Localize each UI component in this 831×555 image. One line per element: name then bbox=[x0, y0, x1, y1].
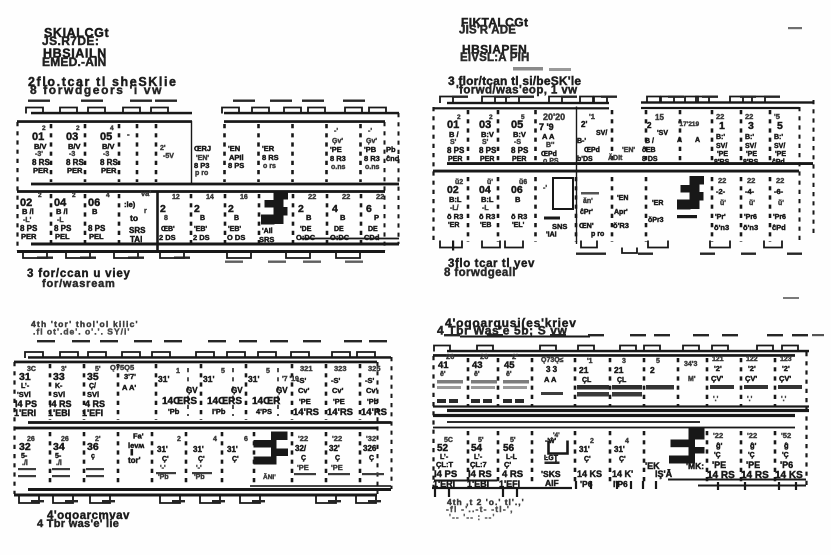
svg-text:12: 12 bbox=[172, 194, 180, 201]
svg-text:ō'n3: ō'n3 bbox=[714, 223, 729, 232]
svg-text:7 '9: 7 '9 bbox=[539, 122, 554, 132]
svg-text:B: B bbox=[234, 215, 239, 222]
svg-text:16: 16 bbox=[240, 194, 248, 201]
svg-text:34'3: 34'3 bbox=[684, 361, 697, 368]
svg-text:S': S' bbox=[482, 139, 489, 146]
svg-text:p ro: p ro bbox=[591, 231, 604, 238]
svg-text:Fa': Fa' bbox=[133, 432, 144, 441]
svg-text:5: 5 bbox=[777, 120, 783, 132]
svg-text:8: 8 bbox=[164, 215, 168, 222]
svg-text:Ç: Ç bbox=[369, 455, 374, 462]
svg-text:31': 31' bbox=[227, 445, 238, 454]
svg-text:ÇL:7: ÇL:7 bbox=[470, 460, 487, 469]
svg-text:21: 21 bbox=[614, 365, 624, 375]
svg-text:B/V: B/V bbox=[68, 142, 81, 151]
svg-text:2: 2 bbox=[298, 203, 304, 215]
svg-text:'EN: 'EN bbox=[617, 195, 628, 202]
svg-text:ÇL: ÇL bbox=[582, 377, 592, 384]
svg-text:Ç': Ç' bbox=[504, 460, 511, 469]
svg-text:PER: PER bbox=[448, 156, 462, 163]
svg-text:14 KS: 14 KS bbox=[775, 470, 803, 481]
svg-text:'-': '-' bbox=[160, 465, 166, 472]
svg-text:M': M' bbox=[688, 376, 696, 383]
svg-text:A A: A A bbox=[542, 132, 555, 141]
svg-text:2: 2 bbox=[650, 365, 655, 375]
svg-text:323: 323 bbox=[334, 364, 347, 373]
svg-text:SRS: SRS bbox=[259, 235, 274, 244]
svg-text:'Pb: 'Pb bbox=[367, 397, 379, 406]
svg-text:-S': -S' bbox=[297, 376, 307, 385]
svg-text:31': 31' bbox=[203, 374, 214, 384]
svg-text:2': 2' bbox=[581, 120, 587, 129]
svg-text:'forwd/was'eop, 1 vw: 'forwd/was'eop, 1 vw bbox=[456, 85, 577, 97]
svg-text:ÇL:T: ÇL:T bbox=[436, 460, 453, 469]
svg-text:Ǫ73Ǫ≤: Ǫ73Ǫ≤ bbox=[541, 357, 564, 364]
svg-text:8'RS: 8'RS bbox=[743, 159, 759, 166]
svg-text:-S': -S' bbox=[331, 376, 341, 385]
svg-text:PER: PER bbox=[480, 156, 494, 163]
svg-text:P: P bbox=[374, 213, 379, 222]
svg-text:'PE: 'PE bbox=[330, 145, 342, 154]
svg-text:B: B bbox=[92, 207, 98, 216]
svg-text:'2': '2' bbox=[782, 364, 790, 373]
svg-text:35: 35 bbox=[87, 371, 99, 383]
svg-text:'32: '32 bbox=[366, 434, 376, 443]
svg-text:5: 5 bbox=[656, 358, 660, 365]
svg-text:PEL: PEL bbox=[55, 232, 70, 241]
svg-text:'22: '22 bbox=[747, 431, 757, 440]
svg-text:-2-: -2- bbox=[716, 187, 726, 196]
svg-text:31': 31' bbox=[579, 445, 590, 454]
svg-text:'P6: 'P6 bbox=[580, 479, 593, 489]
svg-text:3: 3 bbox=[622, 358, 626, 365]
svg-text:B/V: B/V bbox=[34, 142, 47, 151]
svg-text:'PE: 'PE bbox=[331, 463, 343, 472]
svg-text:14ŒR: 14ŒR bbox=[252, 396, 281, 407]
svg-text:Ç/: Ç/ bbox=[89, 383, 96, 390]
svg-text:1'ERl: 1'ERl bbox=[14, 408, 36, 418]
svg-text:321: 321 bbox=[300, 364, 313, 373]
svg-text:21: 21 bbox=[579, 365, 589, 375]
svg-text:./l: ./l bbox=[22, 460, 28, 467]
svg-text:'-': '-' bbox=[196, 465, 202, 472]
svg-text:B:L: B:L bbox=[481, 195, 494, 204]
svg-text:'22: '22 bbox=[298, 434, 308, 443]
svg-text:B /: B / bbox=[645, 138, 654, 145]
svg-text:'ER: 'ER bbox=[448, 222, 459, 229]
svg-text:B:': B:' bbox=[716, 134, 725, 141]
svg-text:Ǫ75Ǫ5: Ǫ75Ǫ5 bbox=[110, 363, 134, 372]
svg-text:3 3: 3 3 bbox=[546, 365, 558, 374]
svg-text:'AIl: 'AIl bbox=[262, 228, 273, 235]
svg-text:SVl: SVl bbox=[87, 390, 99, 399]
svg-text:31': 31' bbox=[248, 374, 259, 384]
svg-text:p ro: p ro bbox=[195, 170, 208, 177]
svg-text:8 PS: 8 PS bbox=[447, 146, 465, 155]
svg-text:ĉnd: ĉnd bbox=[386, 154, 400, 163]
svg-text:EIVSL:A PIH: EIVSL:A PIH bbox=[460, 52, 530, 64]
svg-text:Cv': Cv' bbox=[298, 386, 310, 395]
svg-text:'IAI: 'IAI bbox=[546, 232, 557, 239]
svg-text:22: 22 bbox=[342, 192, 350, 201]
svg-text:SVl: SVl bbox=[53, 390, 65, 399]
svg-text:B: B bbox=[200, 215, 205, 222]
svg-text:-L: -L bbox=[57, 217, 64, 224]
svg-text:SNS: SNS bbox=[552, 222, 567, 231]
svg-text:SV/: SV/ bbox=[716, 143, 727, 150]
svg-text:34: 34 bbox=[53, 441, 65, 453]
svg-text:8 R3: 8 R3 bbox=[364, 154, 380, 163]
svg-text:B /l: B /l bbox=[22, 207, 34, 216]
svg-text:S': S' bbox=[450, 139, 457, 146]
svg-text:'PE: 'PE bbox=[746, 151, 757, 158]
svg-text:'EB': 'EB' bbox=[194, 226, 207, 233]
svg-text:'Pr6: 'Pr6 bbox=[773, 214, 786, 221]
svg-text:Ç': Ç' bbox=[162, 456, 169, 463]
svg-text:for/wasream: for/wasream bbox=[42, 278, 116, 290]
svg-text:'P6: 'P6 bbox=[780, 460, 793, 470]
svg-text:PER: PER bbox=[512, 156, 526, 163]
svg-text:DE: DE bbox=[334, 226, 344, 233]
svg-text:121: 121 bbox=[712, 356, 724, 363]
svg-text:B:': B:' bbox=[745, 134, 754, 141]
svg-text:'Pb: 'Pb bbox=[194, 474, 205, 481]
svg-text:'Pb: 'Pb bbox=[158, 474, 169, 481]
svg-text:2': 2' bbox=[160, 145, 166, 152]
svg-text:ĢV: ĢV bbox=[231, 386, 243, 395]
svg-text:Apr': Apr' bbox=[614, 209, 628, 216]
svg-text:PEL: PEL bbox=[89, 232, 104, 241]
svg-text:'-- '-- : --': '-- '-- : --' bbox=[449, 513, 496, 522]
svg-text:31': 31' bbox=[193, 445, 204, 454]
svg-text:'EL': 'EL' bbox=[512, 222, 525, 229]
svg-text:PER: PER bbox=[21, 232, 37, 241]
svg-text:B:V: B:V bbox=[513, 130, 526, 139]
svg-text:'PB: 'PB bbox=[364, 145, 377, 154]
svg-text:1'EBl: 1'EBl bbox=[48, 408, 70, 418]
svg-text:'17'219: '17'219 bbox=[678, 121, 700, 128]
svg-text:-': -' bbox=[543, 185, 547, 192]
svg-text:-5V: -5V bbox=[163, 153, 174, 160]
svg-text:PER: PER bbox=[101, 166, 117, 175]
svg-text:ŭ': ŭ' bbox=[720, 200, 726, 207]
svg-text:2: 2 bbox=[228, 203, 234, 215]
svg-text:'PE: 'PE bbox=[299, 397, 311, 406]
svg-text:326: 326 bbox=[363, 444, 377, 453]
svg-text:-': -' bbox=[334, 128, 338, 135]
svg-text:45: 45 bbox=[504, 360, 515, 371]
svg-text:-6-: -6- bbox=[774, 187, 784, 196]
svg-text:ŏ'R3: ŏ'R3 bbox=[613, 221, 629, 230]
svg-text:'EB': 'EB' bbox=[228, 226, 241, 233]
svg-text:22: 22 bbox=[776, 176, 784, 185]
svg-text:31': 31' bbox=[157, 445, 168, 454]
svg-text:54: 54 bbox=[471, 443, 483, 454]
svg-text:2: 2 bbox=[177, 436, 181, 443]
svg-text:ō R3: ō R3 bbox=[511, 212, 527, 221]
svg-text:Pb: Pb bbox=[386, 145, 396, 154]
svg-text:'PE: 'PE bbox=[717, 151, 728, 158]
svg-text:ŒPd: ŒPd bbox=[541, 151, 557, 158]
svg-text:-L': -L' bbox=[23, 217, 32, 224]
svg-text:Ģv': Ģv' bbox=[332, 138, 343, 145]
svg-text:ĉEB: ĉEB bbox=[642, 147, 656, 154]
svg-text:14'RS: 14'RS bbox=[327, 407, 353, 418]
svg-text:4 Tbr was'e' lie: 4 Tbr was'e' lie bbox=[37, 518, 119, 530]
svg-text:PER: PER bbox=[67, 166, 83, 175]
svg-text:Cv': Cv' bbox=[366, 386, 378, 395]
svg-text:2: 2 bbox=[72, 192, 76, 199]
svg-text:B:L: B:L bbox=[449, 195, 462, 204]
svg-text:B:': B:' bbox=[774, 134, 783, 141]
svg-text:41: 41 bbox=[438, 360, 449, 371]
svg-text:22: 22 bbox=[308, 192, 316, 201]
svg-text:'EN: 'EN bbox=[228, 144, 240, 153]
svg-text:va': va' bbox=[141, 189, 151, 198]
svg-text:-S: -S bbox=[514, 139, 521, 146]
svg-text:o.ns: o.ns bbox=[365, 164, 379, 171]
svg-text:2: 2 bbox=[590, 438, 594, 445]
svg-text:'ER: 'ER bbox=[262, 144, 275, 153]
svg-text:B:V: B:V bbox=[481, 130, 494, 139]
svg-text:33: 33 bbox=[53, 371, 65, 383]
svg-text:to: to bbox=[130, 213, 138, 223]
svg-text:14 K': 14 K' bbox=[612, 469, 633, 479]
svg-text:4: 4 bbox=[106, 192, 110, 199]
svg-text:14ŒRS: 14ŒRS bbox=[162, 396, 197, 407]
svg-text:r: r bbox=[144, 208, 147, 215]
svg-text:8 forwdgeall: 8 forwdgeall bbox=[444, 267, 516, 279]
svg-text:'2': '2' bbox=[748, 364, 756, 373]
svg-text:ÇV': ÇV' bbox=[779, 374, 791, 383]
svg-text:3: 3 bbox=[748, 120, 754, 132]
svg-text:B: B bbox=[306, 213, 312, 222]
svg-text:1: 1 bbox=[719, 120, 725, 132]
svg-text:Ç: Ç bbox=[301, 455, 306, 462]
svg-text:'EB: 'EB bbox=[480, 222, 491, 229]
svg-text:32: 32 bbox=[19, 441, 31, 453]
svg-text:8 P3: 8 P3 bbox=[194, 161, 209, 170]
svg-text:325: 325 bbox=[368, 364, 381, 373]
svg-text:4: 4 bbox=[332, 203, 338, 215]
svg-text:b'DS: b'DS bbox=[577, 156, 593, 163]
svg-text:'1: '1 bbox=[589, 112, 595, 121]
svg-text:o rs: o rs bbox=[263, 163, 276, 170]
svg-text:'Ç: 'Ç bbox=[782, 452, 789, 459]
svg-text:ĿĠŢ: ĿĠŢ bbox=[544, 453, 559, 462]
svg-text:'Pb: 'Pb bbox=[168, 407, 180, 416]
svg-text:122: 122 bbox=[746, 356, 758, 363]
svg-text:'PE: 'PE bbox=[775, 151, 786, 158]
svg-text:-L/: -L/ bbox=[450, 205, 459, 212]
svg-text:ĢV: ĢV bbox=[276, 386, 288, 395]
svg-text:2: 2 bbox=[647, 121, 652, 130]
svg-text:'1: '1 bbox=[587, 358, 593, 365]
svg-text:-': -' bbox=[368, 128, 372, 135]
svg-text:K-: K- bbox=[55, 383, 63, 390]
svg-text:'Pr6: 'Pr6 bbox=[744, 214, 757, 221]
svg-text:A: A bbox=[695, 137, 700, 144]
svg-text:B/V: B/V bbox=[102, 142, 115, 151]
svg-text:8 DS: 8 DS bbox=[642, 156, 658, 163]
svg-text:6: 6 bbox=[244, 436, 248, 443]
svg-text::le): :le) bbox=[124, 200, 136, 209]
svg-text:123: 123 bbox=[780, 356, 792, 363]
svg-text:SV/: SV/ bbox=[745, 143, 756, 150]
svg-text:ĂNI': ĂNI' bbox=[263, 472, 276, 481]
svg-text:-: - bbox=[127, 130, 130, 139]
svg-text:8 forwdgeors 'i vw: 8 forwdgeors 'i vw bbox=[30, 83, 163, 97]
svg-text:2: 2 bbox=[160, 203, 166, 215]
svg-text:ĂDIt: ĂDIt bbox=[608, 153, 623, 162]
svg-text:2 DS: 2 DS bbox=[159, 233, 176, 242]
svg-text:B: B bbox=[340, 213, 346, 222]
svg-text:PER: PER bbox=[33, 166, 49, 175]
svg-text:1: 1 bbox=[176, 368, 180, 375]
svg-text:ç: ç bbox=[91, 453, 95, 460]
svg-text:14ŒRS: 14ŒRS bbox=[207, 396, 242, 407]
svg-text:./l: ./l bbox=[56, 460, 62, 467]
svg-text:'22: '22 bbox=[332, 434, 342, 443]
svg-text:'Ç: 'Ç bbox=[748, 452, 755, 459]
svg-text:22: 22 bbox=[747, 176, 755, 185]
svg-text:Ç': Ç' bbox=[198, 456, 205, 463]
svg-text:20'20: 20'20 bbox=[543, 112, 565, 122]
svg-text:'.': '.' bbox=[781, 396, 787, 403]
svg-text:1'EFl: 1'EFl bbox=[82, 408, 103, 418]
svg-text:SRS: SRS bbox=[129, 226, 146, 235]
svg-text:8 R3: 8 R3 bbox=[330, 154, 346, 163]
svg-text:14 RS: 14 RS bbox=[707, 470, 735, 481]
svg-text:ÇV': ÇV' bbox=[711, 374, 723, 383]
svg-text:1'EBl: 1'EBl bbox=[467, 479, 489, 489]
svg-text:8 PS: 8 PS bbox=[479, 146, 497, 155]
svg-text:B-': B-' bbox=[577, 138, 586, 145]
svg-text:'.': '.' bbox=[713, 396, 719, 403]
svg-text:'SVl: 'SVl bbox=[17, 390, 31, 399]
svg-text:B /l: B /l bbox=[56, 207, 68, 216]
svg-text:O:DC: O:DC bbox=[296, 233, 316, 242]
svg-text:-L: -L bbox=[482, 205, 489, 212]
svg-text:1'ERl: 1'ERl bbox=[433, 479, 455, 489]
svg-text:-3: -3 bbox=[103, 151, 109, 158]
svg-text:SV/: SV/ bbox=[774, 143, 785, 150]
svg-text:-'ŵ': -'ŵ' bbox=[545, 438, 556, 445]
svg-text:8'RS: 8'RS bbox=[714, 159, 730, 166]
svg-text:B /: B / bbox=[449, 130, 460, 139]
svg-text:52: 52 bbox=[437, 443, 449, 454]
svg-text:ŭ': ŭ' bbox=[778, 200, 784, 207]
svg-text:8 RS: 8 RS bbox=[262, 153, 279, 162]
svg-text:43: 43 bbox=[472, 360, 483, 371]
svg-text:ŒPd: ŒPd bbox=[584, 147, 600, 154]
svg-text:2: 2 bbox=[38, 192, 42, 199]
svg-text:-3: -3 bbox=[69, 151, 75, 158]
svg-text:1'EFl: 1'EFl bbox=[499, 479, 520, 489]
svg-text:ĉPd: ĉPd bbox=[772, 223, 786, 232]
svg-text:'DE: 'DE bbox=[300, 226, 312, 233]
svg-text:'ER: 'ER bbox=[652, 200, 663, 207]
svg-text:ÇL: ÇL bbox=[617, 377, 627, 384]
svg-text:A A': A A' bbox=[122, 383, 136, 392]
svg-text:.fl ot'.de'. o'.'. SY/i': .fl ot'.de'. o'.'. SY/i' bbox=[33, 327, 130, 337]
svg-text:Ç: Ç bbox=[335, 455, 340, 462]
svg-text:ŒB': ŒB' bbox=[161, 226, 175, 233]
svg-text:ō'n3: ō'n3 bbox=[743, 223, 758, 232]
svg-text:ŒRJ: ŒRJ bbox=[194, 144, 211, 153]
svg-text:ÇV': ÇV' bbox=[745, 374, 757, 383]
svg-text:22: 22 bbox=[376, 192, 384, 201]
svg-text:ĉPd: ĉPd bbox=[772, 159, 785, 166]
svg-text:14'RS: 14'RS bbox=[293, 407, 319, 418]
svg-text:ō R3: ō R3 bbox=[447, 212, 463, 221]
svg-text:4: 4 bbox=[213, 436, 217, 443]
svg-text:'52: '52 bbox=[781, 431, 791, 440]
svg-text:ē': ē' bbox=[506, 371, 512, 378]
svg-text:'Pr': 'Pr' bbox=[715, 214, 726, 221]
svg-text:-4-: -4- bbox=[745, 187, 755, 196]
svg-text:ē': ē' bbox=[440, 371, 446, 378]
svg-text:31: 31 bbox=[19, 371, 31, 383]
svg-text:'EN': 'EN' bbox=[622, 147, 635, 154]
svg-text:2: 2 bbox=[194, 203, 200, 215]
svg-text:Ģv': Ģv' bbox=[366, 138, 377, 145]
svg-text:4: 4 bbox=[625, 438, 629, 445]
svg-text:ĢV: ĢV bbox=[186, 386, 198, 395]
svg-text:levʍ: levʍ bbox=[128, 441, 144, 450]
svg-text:'SV: 'SV bbox=[657, 130, 668, 137]
svg-text:B: B bbox=[515, 195, 521, 204]
svg-text:14 KS: 14 KS bbox=[577, 469, 602, 479]
svg-text:2 DS: 2 DS bbox=[193, 233, 210, 242]
svg-text:A: A bbox=[677, 137, 682, 144]
svg-text:L’-: L’- bbox=[21, 383, 30, 390]
svg-text:14 RS: 14 RS bbox=[741, 470, 769, 481]
svg-text:Ç': Ç' bbox=[619, 456, 626, 463]
svg-text:8 PS: 8 PS bbox=[511, 146, 529, 155]
svg-text:AIF: AIF bbox=[545, 478, 559, 488]
svg-text:5: 5 bbox=[266, 368, 270, 375]
svg-text:'PE: 'PE bbox=[297, 463, 309, 472]
svg-text:6: 6 bbox=[366, 203, 372, 215]
svg-text:ē': ē' bbox=[474, 371, 480, 378]
svg-text:ŒN': ŒN' bbox=[579, 221, 594, 230]
svg-text:'22: '22 bbox=[713, 431, 723, 440]
svg-text:ŭ': ŭ' bbox=[749, 200, 755, 207]
svg-text:-3': -3' bbox=[35, 151, 43, 158]
svg-text:31': 31' bbox=[158, 374, 169, 384]
svg-text:JIS'R'ADE: JIS'R'ADE bbox=[459, 25, 516, 37]
svg-text:I'Pb: I'Pb bbox=[212, 407, 226, 416]
svg-text:IŞ'Ā: IŞ'Ā bbox=[655, 469, 673, 479]
svg-text:36: 36 bbox=[87, 441, 99, 453]
svg-text:EMED.-AIN: EMED.-AIN bbox=[42, 55, 106, 69]
svg-text:3'7': 3'7' bbox=[124, 372, 136, 381]
svg-text:22: 22 bbox=[718, 176, 726, 185]
svg-text:5: 5 bbox=[221, 368, 225, 375]
svg-text:SV/: SV/ bbox=[596, 130, 607, 137]
svg-text:ĝ': ĝ' bbox=[750, 441, 757, 450]
svg-text:ăn': ăn' bbox=[583, 198, 593, 205]
svg-text:tor': tor' bbox=[128, 456, 141, 465]
svg-text:ō R3: ō R3 bbox=[479, 212, 495, 221]
svg-text:14: 14 bbox=[206, 194, 214, 201]
svg-text:31': 31' bbox=[614, 445, 625, 454]
svg-text:'MK:: 'MK: bbox=[686, 461, 704, 471]
svg-text:14'RS: 14'RS bbox=[361, 407, 387, 418]
svg-text:56: 56 bbox=[503, 443, 515, 454]
svg-text:ĉPr': ĉPr' bbox=[580, 209, 593, 216]
